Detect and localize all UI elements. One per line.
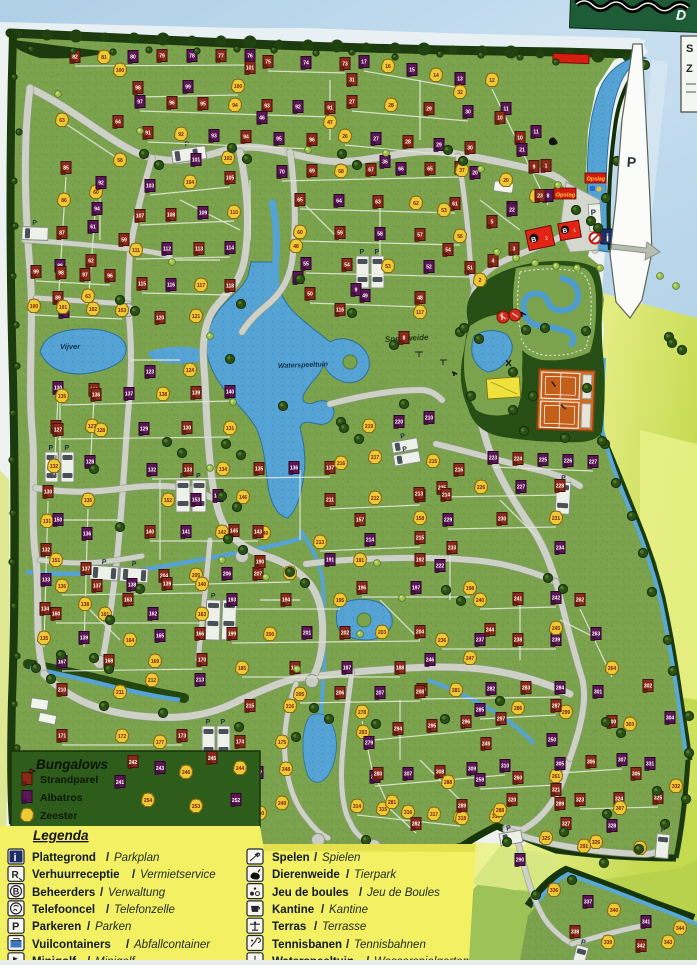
svg-text:309: 309: [468, 767, 477, 773]
svg-text:140: 140: [226, 390, 235, 396]
svg-text:306: 306: [587, 760, 596, 766]
svg-text:103: 103: [146, 184, 155, 190]
svg-text:60: 60: [93, 190, 99, 196]
svg-text:94: 94: [94, 207, 100, 213]
svg-text:Vuilcontainers: Vuilcontainers: [32, 939, 111, 951]
svg-text:Parkplan: Parkplan: [114, 852, 159, 864]
svg-text:170: 170: [198, 658, 207, 664]
svg-text:210: 210: [58, 688, 67, 694]
svg-text:187: 187: [343, 666, 352, 672]
svg-text:164: 164: [126, 638, 135, 644]
svg-text:307: 307: [404, 772, 413, 778]
svg-text:185: 185: [238, 666, 247, 672]
svg-text:Vijver: Vijver: [60, 342, 81, 351]
svg-text:212: 212: [148, 678, 157, 684]
svg-text:131: 131: [43, 519, 52, 525]
svg-text:289: 289: [458, 804, 467, 810]
svg-text:226: 226: [477, 485, 486, 491]
svg-text:293: 293: [359, 730, 368, 736]
svg-text:136: 136: [290, 466, 299, 472]
svg-text:247: 247: [466, 656, 475, 662]
svg-text:286: 286: [514, 706, 523, 712]
svg-text:30: 30: [465, 110, 471, 116]
svg-text:56: 56: [457, 234, 463, 240]
svg-text:R: R: [12, 870, 20, 881]
svg-text:65: 65: [297, 198, 303, 204]
svg-text:108: 108: [167, 213, 176, 219]
svg-text:201: 201: [303, 631, 312, 637]
svg-text:99: 99: [33, 270, 39, 276]
svg-text:188: 188: [396, 666, 405, 672]
svg-text:123: 123: [146, 370, 155, 376]
svg-text:115: 115: [138, 282, 146, 288]
svg-text:22: 22: [509, 208, 515, 214]
svg-text:Terrasse: Terrasse: [322, 921, 366, 933]
svg-text:215: 215: [416, 536, 425, 542]
svg-text:220: 220: [395, 420, 404, 426]
svg-text:101: 101: [246, 66, 255, 72]
svg-text:250: 250: [548, 738, 557, 744]
svg-text:197: 197: [412, 586, 421, 592]
svg-text:314: 314: [353, 804, 362, 810]
svg-text:238: 238: [514, 638, 523, 644]
svg-text:261: 261: [552, 774, 561, 780]
svg-text:121: 121: [192, 314, 201, 320]
svg-text:219: 219: [365, 424, 374, 430]
svg-text:167: 167: [58, 660, 67, 666]
svg-text:86: 86: [61, 198, 67, 204]
svg-text:325: 325: [654, 796, 663, 802]
svg-text:340: 340: [610, 908, 619, 914]
svg-text:203: 203: [378, 630, 387, 636]
svg-text:104: 104: [186, 180, 195, 186]
svg-text:96: 96: [309, 138, 315, 144]
svg-text:213: 213: [196, 678, 205, 684]
svg-text:285: 285: [476, 708, 485, 714]
svg-text:199: 199: [228, 632, 237, 638]
svg-text:113: 113: [195, 247, 203, 253]
svg-text:53: 53: [441, 208, 447, 214]
svg-text:P: P: [12, 921, 19, 933]
svg-text:294: 294: [394, 727, 403, 733]
svg-text:95: 95: [200, 102, 206, 108]
svg-text:307: 307: [616, 806, 625, 812]
svg-text:61: 61: [452, 202, 458, 208]
svg-text:165: 165: [156, 634, 165, 640]
svg-text:70: 70: [279, 170, 285, 176]
svg-text:205: 205: [296, 692, 305, 698]
svg-text:21: 21: [519, 148, 525, 154]
svg-text:139: 139: [163, 582, 172, 588]
svg-text:1: 1: [545, 164, 548, 170]
svg-text:214: 214: [366, 538, 375, 544]
svg-text:30: 30: [467, 146, 473, 152]
svg-text:130: 130: [44, 490, 53, 496]
svg-text:P: P: [211, 593, 216, 600]
svg-text:288: 288: [444, 780, 453, 786]
svg-text:103: 103: [118, 308, 127, 314]
svg-text:Albatros: Albatros: [40, 792, 83, 804]
svg-text:342: 342: [637, 944, 646, 950]
svg-text:23: 23: [537, 194, 543, 200]
svg-text:135: 135: [255, 467, 264, 473]
svg-text:100: 100: [30, 304, 39, 310]
svg-text:282: 282: [487, 687, 496, 693]
svg-text:240: 240: [476, 598, 485, 604]
svg-text:140: 140: [146, 530, 155, 536]
svg-text:328: 328: [608, 824, 617, 830]
svg-text:Opslag: Opslag: [556, 193, 576, 199]
svg-text:61: 61: [90, 225, 96, 231]
svg-text:234: 234: [556, 546, 565, 552]
svg-text:215: 215: [429, 459, 438, 465]
svg-text:Minigolf: Minigolf: [32, 956, 76, 960]
svg-text:52: 52: [426, 265, 432, 271]
svg-text:46: 46: [259, 116, 265, 122]
svg-text:10: 10: [517, 136, 523, 142]
svg-text:Opslag: Opslag: [587, 177, 606, 183]
svg-text:168: 168: [105, 659, 114, 665]
svg-text:11: 11: [533, 130, 539, 136]
svg-text:94: 94: [243, 135, 249, 141]
svg-text:137: 137: [326, 466, 335, 472]
svg-text:172: 172: [118, 734, 127, 740]
svg-text:117: 117: [197, 283, 205, 289]
svg-text:207: 207: [376, 691, 385, 697]
svg-text:92: 92: [178, 132, 184, 138]
svg-text:D: D: [676, 7, 687, 23]
svg-text:132: 132: [42, 548, 51, 554]
svg-text:29: 29: [426, 107, 432, 113]
svg-text:53: 53: [385, 264, 391, 270]
svg-text:224: 224: [514, 457, 523, 463]
svg-text:175: 175: [278, 740, 287, 746]
svg-text:95: 95: [276, 137, 282, 143]
svg-text:Strandparel: Strandparel: [40, 774, 98, 786]
svg-text:Terras: Terras: [272, 921, 306, 933]
svg-text:200: 200: [266, 632, 275, 638]
svg-text:101: 101: [59, 305, 68, 311]
svg-text:318: 318: [458, 816, 467, 822]
svg-text:i: i: [606, 233, 609, 245]
svg-text:81: 81: [101, 55, 107, 61]
svg-text:16: 16: [385, 64, 391, 70]
svg-text:304: 304: [666, 716, 675, 722]
svg-text:P: P: [32, 220, 37, 227]
svg-text:259: 259: [476, 778, 485, 784]
svg-text:263: 263: [592, 632, 601, 638]
svg-text:117: 117: [416, 310, 424, 316]
svg-text:116: 116: [167, 283, 175, 289]
svg-text:Waterspeeltuin: Waterspeeltuin: [272, 956, 354, 960]
svg-text:214: 214: [442, 493, 451, 499]
svg-text:66: 66: [398, 167, 404, 173]
svg-text:85: 85: [63, 166, 69, 172]
svg-text:65: 65: [427, 167, 433, 173]
svg-text:213: 213: [316, 540, 325, 546]
svg-text:57: 57: [417, 233, 423, 239]
svg-text:101: 101: [192, 158, 201, 164]
svg-text:215: 215: [246, 704, 255, 710]
svg-text:136: 136: [92, 393, 101, 399]
svg-text:20: 20: [503, 178, 509, 184]
svg-text:100: 100: [116, 68, 125, 74]
svg-text:191: 191: [326, 558, 335, 564]
svg-text:P: P: [101, 559, 106, 566]
svg-text:239: 239: [552, 638, 561, 644]
svg-text:301: 301: [594, 690, 603, 696]
svg-text:262: 262: [576, 598, 585, 604]
svg-text:134: 134: [41, 607, 50, 613]
svg-text:P: P: [65, 445, 70, 452]
svg-text:260: 260: [514, 776, 523, 782]
svg-text:87: 87: [59, 231, 65, 237]
svg-text:B: B: [13, 887, 20, 897]
svg-text:146: 146: [239, 495, 248, 501]
svg-text:Kantine: Kantine: [329, 904, 368, 916]
svg-text:107: 107: [136, 214, 145, 220]
svg-text:306: 306: [632, 772, 641, 778]
svg-text:143: 143: [254, 530, 263, 536]
svg-text:29: 29: [436, 143, 442, 149]
svg-text:139: 139: [80, 636, 89, 642]
svg-text:249: 249: [482, 742, 491, 748]
svg-text:26: 26: [342, 134, 348, 140]
svg-text:150: 150: [54, 518, 63, 524]
svg-text:296: 296: [462, 720, 471, 726]
svg-text:80: 80: [130, 55, 136, 61]
svg-text:Tierpark: Tierpark: [354, 869, 397, 881]
svg-text:98: 98: [58, 271, 64, 277]
svg-text:320: 320: [508, 798, 517, 804]
svg-text:Tennisbanen: Tennisbanen: [272, 939, 342, 951]
svg-text:28: 28: [388, 103, 394, 109]
svg-text:76: 76: [247, 54, 253, 60]
svg-text:343: 343: [664, 940, 673, 946]
svg-text:208: 208: [416, 690, 425, 696]
svg-text:315: 315: [379, 807, 388, 813]
svg-text:P: P: [375, 249, 380, 256]
svg-text:163: 163: [198, 612, 207, 618]
svg-text:10: 10: [497, 116, 503, 122]
svg-text:133: 133: [42, 578, 51, 584]
svg-text:98: 98: [135, 86, 141, 92]
svg-text:291: 291: [580, 844, 589, 850]
svg-text:327: 327: [562, 822, 571, 828]
svg-text:243: 243: [156, 766, 165, 772]
svg-text:Verwaltung: Verwaltung: [108, 887, 166, 899]
svg-text:136: 136: [83, 532, 92, 538]
svg-text:Wasserspielgarten: Wasserspielgarten: [374, 956, 469, 960]
svg-text:Parkeren: Parkeren: [32, 921, 81, 933]
svg-text:118: 118: [226, 284, 234, 290]
svg-text:336: 336: [550, 888, 559, 894]
svg-text:134: 134: [219, 467, 228, 473]
svg-text:132: 132: [148, 468, 157, 474]
svg-text:194: 194: [282, 598, 291, 604]
svg-text:Vermietservice: Vermietservice: [140, 869, 216, 881]
svg-text:216: 216: [286, 704, 295, 710]
svg-text:249: 249: [278, 801, 287, 807]
svg-text:326: 326: [592, 840, 601, 846]
svg-text:253: 253: [192, 804, 201, 810]
svg-text:50: 50: [307, 292, 313, 298]
svg-text:82: 82: [72, 55, 78, 61]
svg-text:Plattegrond: Plattegrond: [32, 852, 96, 864]
svg-text:97: 97: [137, 100, 143, 106]
svg-text:i: i: [14, 852, 17, 864]
svg-text:58: 58: [377, 232, 383, 238]
svg-text:54: 54: [445, 248, 451, 254]
svg-text:132: 132: [50, 464, 59, 470]
svg-text:32: 32: [457, 90, 463, 96]
svg-text:111: 111: [132, 248, 140, 254]
svg-text:60: 60: [297, 230, 303, 236]
svg-text:96: 96: [169, 101, 175, 107]
svg-text:288: 288: [496, 808, 505, 814]
svg-text:62: 62: [88, 259, 94, 265]
svg-text:109: 109: [199, 211, 208, 217]
svg-text:141: 141: [182, 530, 191, 536]
svg-text:206: 206: [336, 691, 345, 697]
svg-text:321: 321: [552, 788, 561, 794]
svg-text:136: 136: [58, 584, 67, 590]
svg-text:59: 59: [121, 238, 127, 244]
svg-text:Zeester: Zeester: [40, 810, 77, 822]
svg-text:Spielen: Spielen: [322, 852, 360, 864]
svg-text:97: 97: [82, 273, 88, 279]
svg-text:202: 202: [341, 631, 350, 637]
svg-text:49: 49: [362, 294, 368, 300]
svg-text:289: 289: [556, 802, 565, 808]
svg-text:337: 337: [584, 900, 593, 906]
svg-text:210: 210: [425, 416, 434, 422]
svg-text:P: P: [626, 154, 636, 171]
svg-text:316: 316: [404, 810, 413, 816]
svg-text:195: 195: [336, 598, 345, 604]
svg-text:94: 94: [232, 103, 238, 109]
svg-text:74: 74: [303, 61, 309, 67]
svg-text:242: 242: [552, 596, 561, 602]
svg-text:166: 166: [196, 632, 205, 638]
svg-text:64: 64: [115, 120, 121, 126]
svg-text:Bungalows: Bungalows: [36, 757, 108, 772]
svg-text:64: 64: [336, 199, 342, 205]
svg-text:297: 297: [497, 717, 506, 723]
svg-text:295: 295: [428, 724, 437, 730]
svg-text:338: 338: [571, 930, 580, 936]
svg-text:252: 252: [232, 798, 241, 804]
svg-text:138: 138: [159, 392, 168, 398]
svg-text:135: 135: [40, 636, 49, 642]
svg-text:28: 28: [405, 140, 411, 146]
svg-text:Beheerders: Beheerders: [32, 887, 95, 899]
svg-text:280: 280: [374, 772, 383, 778]
svg-text:Minigolf: Minigolf: [95, 956, 136, 960]
svg-text:244: 244: [486, 628, 495, 634]
svg-text:14: 14: [433, 73, 439, 79]
svg-text:67: 67: [368, 168, 374, 174]
svg-text:190: 190: [256, 560, 265, 566]
svg-text:54: 54: [344, 263, 350, 269]
svg-text:162: 162: [149, 612, 158, 618]
svg-text:245: 245: [552, 626, 561, 632]
svg-text:133: 133: [184, 468, 193, 474]
svg-text:212: 212: [371, 496, 380, 502]
svg-text:169: 169: [151, 659, 160, 665]
svg-text:281: 281: [388, 800, 397, 806]
svg-text:Legenda: Legenda: [33, 828, 89, 843]
svg-text:8: 8: [403, 336, 406, 342]
svg-text:278: 278: [358, 710, 367, 716]
svg-text:93: 93: [211, 134, 217, 140]
svg-text:Telefonzelle: Telefonzelle: [114, 904, 175, 916]
svg-text:303: 303: [626, 722, 635, 728]
svg-text:171: 171: [58, 734, 67, 740]
svg-text:344: 344: [676, 926, 685, 932]
svg-text:17: 17: [361, 60, 367, 66]
svg-text:Telefooncel: Telefooncel: [32, 904, 95, 916]
svg-text:79: 79: [159, 54, 165, 60]
svg-text:264: 264: [608, 666, 617, 672]
svg-text:237: 237: [476, 638, 485, 644]
svg-text:Parken: Parken: [95, 921, 131, 933]
svg-text:223: 223: [489, 456, 498, 462]
svg-text:48: 48: [293, 244, 299, 250]
svg-text:Z: Z: [686, 63, 693, 75]
svg-text:227: 227: [589, 460, 598, 466]
svg-text:135: 135: [84, 498, 93, 504]
svg-text:228: 228: [556, 484, 565, 490]
svg-text:308: 308: [436, 770, 445, 776]
svg-text:287: 287: [552, 704, 561, 710]
svg-text:331: 331: [646, 762, 655, 768]
svg-text:93: 93: [264, 104, 270, 110]
svg-text:128: 128: [97, 428, 106, 434]
svg-text:5: 5: [491, 220, 494, 226]
svg-text:211: 211: [116, 690, 124, 696]
svg-text:3: 3: [513, 247, 516, 253]
svg-text:231: 231: [552, 516, 561, 522]
svg-text:233: 233: [448, 546, 457, 552]
svg-text:27: 27: [349, 100, 355, 106]
svg-text:P: P: [221, 719, 226, 726]
svg-text:246: 246: [426, 658, 435, 664]
svg-text:204: 204: [416, 630, 425, 636]
svg-text:13: 13: [457, 77, 463, 83]
svg-text:226: 226: [564, 459, 573, 465]
svg-text:332: 332: [672, 784, 681, 790]
svg-text:48: 48: [417, 296, 423, 302]
svg-text:137: 137: [125, 392, 134, 398]
svg-text:110: 110: [230, 210, 238, 216]
svg-text:Verhuurreceptie: Verhuurreceptie: [32, 869, 120, 881]
svg-text:91: 91: [327, 106, 333, 112]
svg-text:339: 339: [604, 940, 613, 946]
svg-text:20: 20: [472, 171, 478, 177]
svg-text:68: 68: [338, 169, 344, 175]
svg-text:225: 225: [539, 458, 548, 464]
svg-text:105: 105: [226, 176, 235, 182]
svg-text:317: 317: [430, 812, 439, 818]
svg-text:63: 63: [375, 200, 381, 206]
svg-text:92: 92: [98, 181, 104, 187]
svg-text:191: 191: [356, 558, 365, 564]
svg-text:281: 281: [452, 688, 461, 694]
svg-text:92: 92: [295, 105, 301, 111]
svg-text:140: 140: [198, 582, 207, 588]
svg-text:12: 12: [489, 78, 495, 84]
